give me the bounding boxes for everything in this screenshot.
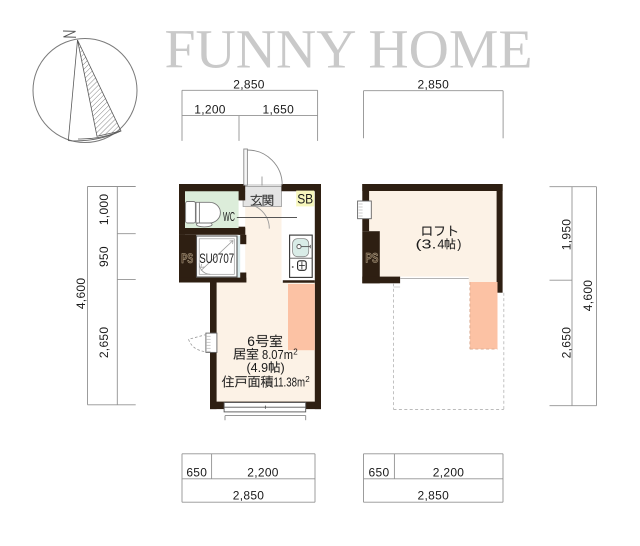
svg-text:2,650: 2,650 xyxy=(560,327,574,359)
svg-text:FUNNY HOME: FUNNY HOME xyxy=(165,19,533,80)
svg-text:1,950: 1,950 xyxy=(560,219,574,251)
svg-text:SU0707: SU0707 xyxy=(199,250,234,266)
svg-text:(4.9: (4.9 xyxy=(247,361,269,375)
svg-text:4: 4 xyxy=(437,237,444,251)
svg-text:8.07m: 8.07m xyxy=(262,348,293,362)
svg-text:11.38m: 11.38m xyxy=(274,376,306,390)
svg-text:): ) xyxy=(281,361,285,375)
svg-text:1,200: 1,200 xyxy=(194,102,226,116)
svg-text:1,650: 1,650 xyxy=(263,102,295,116)
svg-text:2,850: 2,850 xyxy=(233,489,265,503)
svg-text:(3.: (3. xyxy=(416,237,437,251)
svg-text:2,850: 2,850 xyxy=(233,77,265,91)
svg-text:2: 2 xyxy=(305,375,310,384)
svg-text:650: 650 xyxy=(369,465,390,479)
svg-text:2: 2 xyxy=(293,347,298,356)
svg-text:PS: PS xyxy=(181,251,193,266)
svg-text:2,200: 2,200 xyxy=(247,465,279,479)
svg-text:6: 6 xyxy=(247,334,255,349)
svg-text:2,650: 2,650 xyxy=(97,327,111,359)
svg-text:650: 650 xyxy=(186,465,207,479)
svg-text:4,600: 4,600 xyxy=(74,278,88,310)
svg-text:): ) xyxy=(457,237,461,251)
svg-text:2,850: 2,850 xyxy=(418,489,450,503)
svg-text:2,850: 2,850 xyxy=(418,78,450,92)
svg-text:950: 950 xyxy=(97,246,111,267)
svg-text:1,000: 1,000 xyxy=(97,194,111,226)
svg-text:WC: WC xyxy=(223,209,235,224)
svg-text:PS: PS xyxy=(365,251,378,266)
svg-text:4,600: 4,600 xyxy=(581,280,595,312)
svg-text:SB: SB xyxy=(297,191,313,207)
svg-text:2,200: 2,200 xyxy=(433,465,465,479)
